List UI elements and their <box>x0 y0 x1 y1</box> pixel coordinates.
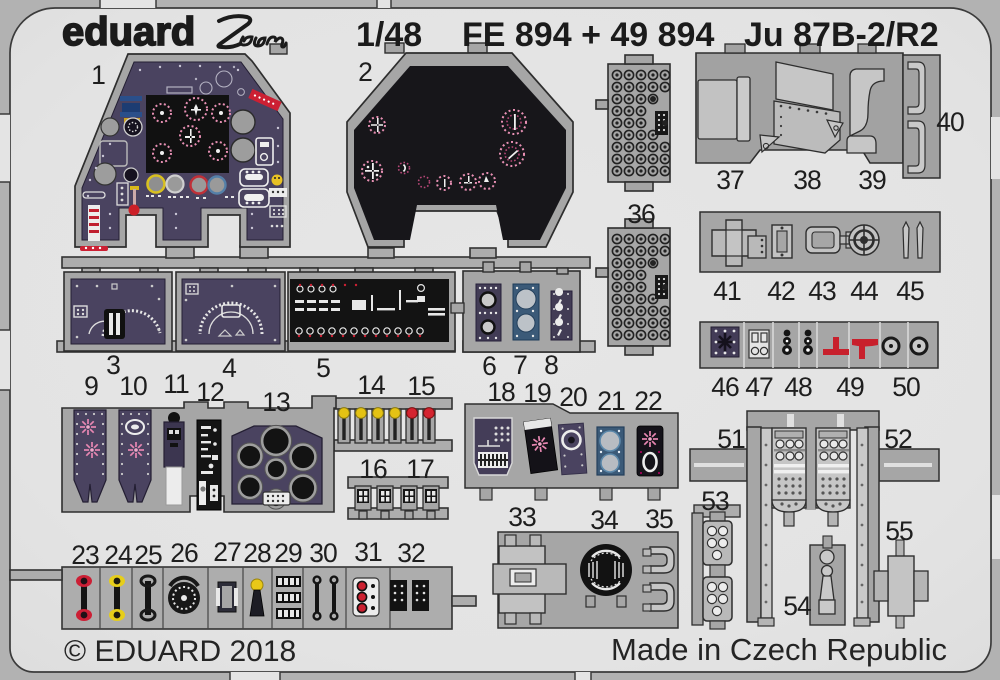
svg-text:11: 11 <box>163 369 189 399</box>
svg-text:16: 16 <box>359 454 387 484</box>
svg-text:3: 3 <box>106 350 120 380</box>
svg-text:55: 55 <box>885 516 913 546</box>
svg-text:18: 18 <box>487 377 515 407</box>
svg-text:20: 20 <box>559 382 587 412</box>
svg-text:26: 26 <box>170 538 198 568</box>
svg-text:41: 41 <box>713 276 741 306</box>
svg-text:50: 50 <box>892 372 920 402</box>
svg-text:37: 37 <box>716 165 744 195</box>
svg-text:33: 33 <box>508 502 536 532</box>
svg-text:48: 48 <box>784 372 812 402</box>
svg-text:51: 51 <box>717 424 745 454</box>
svg-text:1/48: 1/48 <box>356 16 422 54</box>
svg-text:39: 39 <box>858 165 886 195</box>
svg-text:9: 9 <box>84 371 98 401</box>
svg-text:53: 53 <box>701 486 729 516</box>
svg-text:29: 29 <box>274 538 302 568</box>
svg-text:1: 1 <box>91 60 105 90</box>
svg-text:46: 46 <box>711 372 739 402</box>
svg-text:42: 42 <box>767 276 795 306</box>
svg-text:27: 27 <box>213 537 241 567</box>
svg-text:40: 40 <box>936 107 964 137</box>
svg-text:36: 36 <box>627 199 655 229</box>
svg-text:13: 13 <box>262 387 290 417</box>
svg-text:25: 25 <box>134 540 162 570</box>
svg-text:30: 30 <box>309 538 337 568</box>
svg-text:45: 45 <box>896 276 924 306</box>
svg-text:12: 12 <box>196 377 224 407</box>
svg-text:32: 32 <box>397 538 425 568</box>
svg-text:47: 47 <box>745 372 773 402</box>
svg-text:31: 31 <box>354 537 382 567</box>
svg-text:FE 894 + 49 894: FE 894 + 49 894 <box>462 16 714 54</box>
svg-text:35: 35 <box>645 504 673 534</box>
svg-text:14: 14 <box>357 370 385 400</box>
svg-text:5: 5 <box>316 353 330 383</box>
svg-text:43: 43 <box>808 276 836 306</box>
svg-text:24: 24 <box>104 540 132 570</box>
svg-text:17: 17 <box>406 454 434 484</box>
svg-text:15: 15 <box>407 371 435 401</box>
svg-text:52: 52 <box>884 424 912 454</box>
svg-text:28: 28 <box>243 538 271 568</box>
svg-text:7: 7 <box>513 350 527 380</box>
svg-text:19: 19 <box>523 378 551 408</box>
svg-text:4: 4 <box>222 353 236 383</box>
svg-text:21: 21 <box>597 386 625 416</box>
svg-text:2: 2 <box>358 57 372 87</box>
svg-text:44: 44 <box>850 276 878 306</box>
svg-text:8: 8 <box>544 350 558 380</box>
svg-text:34: 34 <box>590 505 618 535</box>
svg-text:10: 10 <box>119 371 147 401</box>
svg-text:Ju 87B-2/R2: Ju 87B-2/R2 <box>744 16 939 54</box>
svg-text:49: 49 <box>836 372 864 402</box>
svg-text:eduard: eduard <box>62 10 195 54</box>
svg-text:54: 54 <box>783 591 811 621</box>
svg-text:22: 22 <box>634 386 662 416</box>
svg-text:23: 23 <box>71 540 99 570</box>
svg-text:Made in Czech Republic: Made in Czech Republic <box>611 632 947 667</box>
svg-text:© EDUARD 2018: © EDUARD 2018 <box>64 635 296 668</box>
svg-text:38: 38 <box>793 165 821 195</box>
